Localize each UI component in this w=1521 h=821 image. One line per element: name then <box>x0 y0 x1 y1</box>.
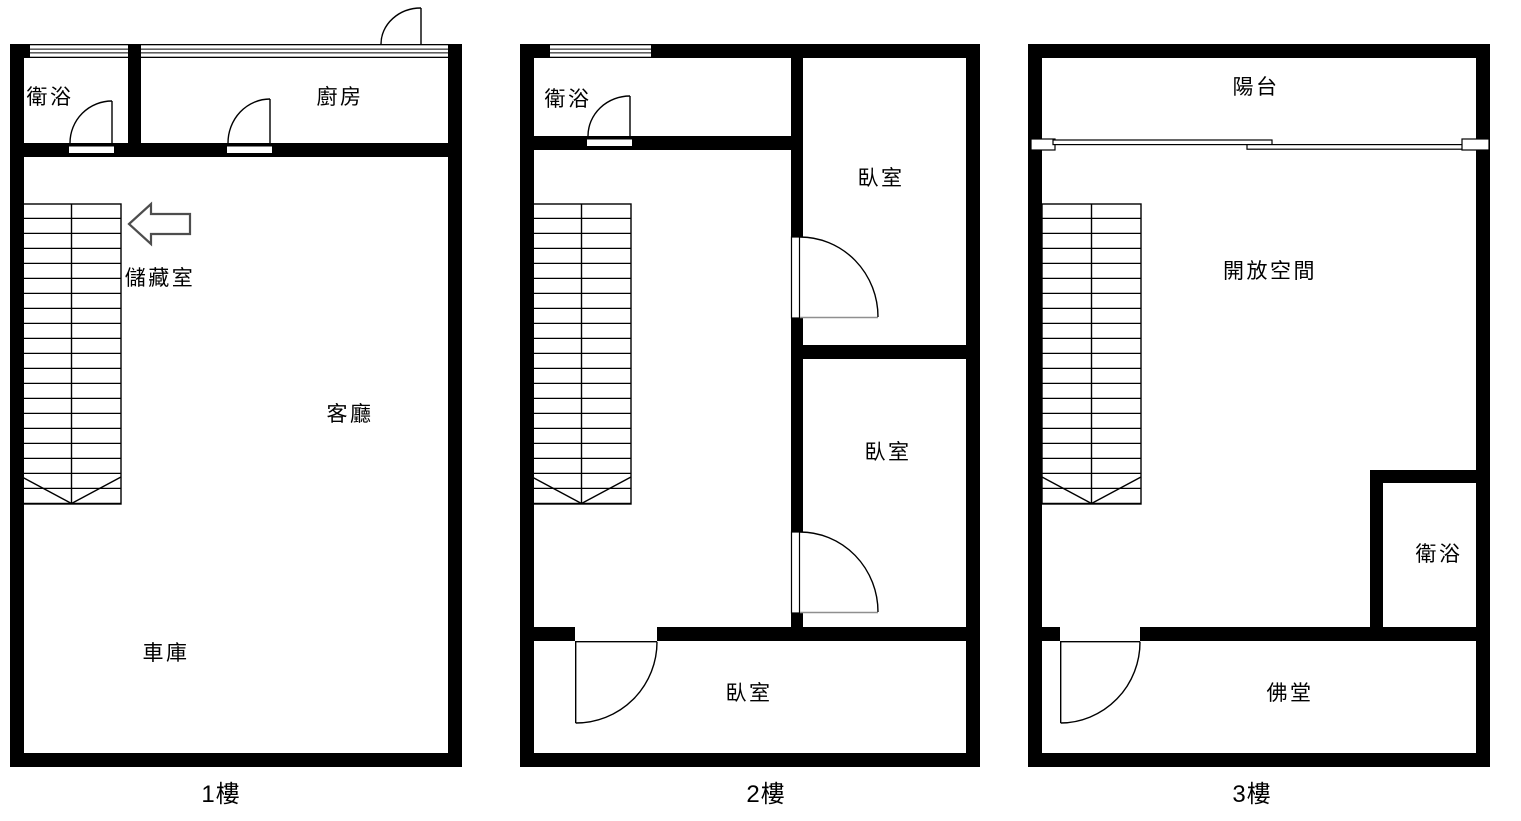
room-label-bathroom: 衛浴 <box>27 86 74 109</box>
door-threshold <box>227 147 272 154</box>
wall-bathroom-vertical <box>1370 470 1383 641</box>
sliding-door-end-block <box>1462 139 1489 150</box>
room-label-bathroom: 衛浴 <box>1416 543 1463 566</box>
floor-plan-canvas: 衛浴 廚房 儲藏室 客廳 車庫 1樓 <box>0 0 1521 821</box>
buddhist-hall-door <box>1060 641 1140 723</box>
room-label-open-space: 開放空間 <box>1223 260 1317 283</box>
wall-top <box>1028 44 1490 58</box>
bedroom-lower-door <box>575 641 657 723</box>
wall-above-lower-bedroom <box>657 627 966 641</box>
room-label-bedroom-upper: 臥室 <box>858 167 905 190</box>
floor-3-plan: 陽台 開放空間 衛浴 佛堂 3樓 <box>1028 44 1490 808</box>
room-label-garage: 車庫 <box>143 642 190 665</box>
room-label-bedroom-lower: 臥室 <box>726 682 773 705</box>
room-label-buddhist-hall: 佛堂 <box>1267 682 1314 705</box>
wall-bedroom-vertical <box>791 58 803 237</box>
sliding-door-panel <box>1053 140 1272 145</box>
bedroom-middle-door <box>792 532 879 613</box>
room-label-bedroom-middle: 臥室 <box>865 441 912 464</box>
window <box>550 45 651 56</box>
floor-label: 2樓 <box>746 781 785 808</box>
wall-bedroom-vertical <box>791 318 803 532</box>
wall-above-hall <box>1028 627 1060 641</box>
door-arc <box>576 642 657 723</box>
wall-above-lower-bedroom <box>520 627 575 641</box>
entry-door <box>381 8 421 44</box>
floor-label: 1樓 <box>201 781 240 808</box>
bedroom-upper-door <box>792 237 879 318</box>
floor-2-windows <box>550 45 651 56</box>
door-threshold <box>587 140 632 147</box>
door-arc <box>70 101 112 143</box>
balcony-sliding-door <box>1031 139 1489 150</box>
door-arc <box>228 99 270 143</box>
floor-1-windows <box>30 45 448 56</box>
floor-2-plan: 衛浴 臥室 臥室 臥室 2樓 <box>520 44 980 808</box>
wall-bedroom-divider <box>803 345 966 359</box>
wall-left <box>1028 44 1042 767</box>
door-arc <box>381 8 421 44</box>
room-label-living-room: 客廳 <box>327 403 374 426</box>
staircase <box>532 204 631 504</box>
door-leaf <box>792 532 800 613</box>
door-arc <box>800 237 878 317</box>
door-arc <box>800 532 878 612</box>
wall-right <box>1476 44 1490 767</box>
window <box>141 45 448 56</box>
floor-label: 3樓 <box>1232 781 1271 808</box>
door-arc <box>1061 642 1140 723</box>
door-arc <box>588 96 630 136</box>
wall-bottom <box>520 753 980 767</box>
wall-bath-kitchen-divider <box>128 44 141 157</box>
floor-3-labels: 陽台 開放空間 衛浴 佛堂 3樓 <box>1223 76 1463 808</box>
sliding-door-panel <box>1247 145 1463 150</box>
floor-plan-svg: 衛浴 廚房 儲藏室 客廳 車庫 1樓 <box>0 0 1521 821</box>
wall-bottom <box>10 753 462 767</box>
wall-above-hall <box>1140 627 1476 641</box>
floor-1-plan: 衛浴 廚房 儲藏室 客廳 車庫 1樓 <box>10 8 462 808</box>
sliding-door-end-block <box>1031 139 1055 150</box>
staircase <box>22 204 121 504</box>
staircase <box>1042 204 1141 504</box>
room-label-storage: 儲藏室 <box>125 267 196 290</box>
wall-bottom <box>1028 753 1490 767</box>
wall-under-bathroom <box>520 136 803 150</box>
door-leaf <box>792 237 800 318</box>
room-label-balcony: 陽台 <box>1233 76 1280 99</box>
window <box>30 45 128 56</box>
wall-bathroom-top <box>1370 470 1476 483</box>
room-label-bathroom: 衛浴 <box>545 88 592 111</box>
room-label-kitchen: 廚房 <box>317 86 364 109</box>
left-arrow-icon <box>129 204 190 244</box>
wall-right <box>966 44 980 767</box>
door-threshold <box>69 147 114 154</box>
